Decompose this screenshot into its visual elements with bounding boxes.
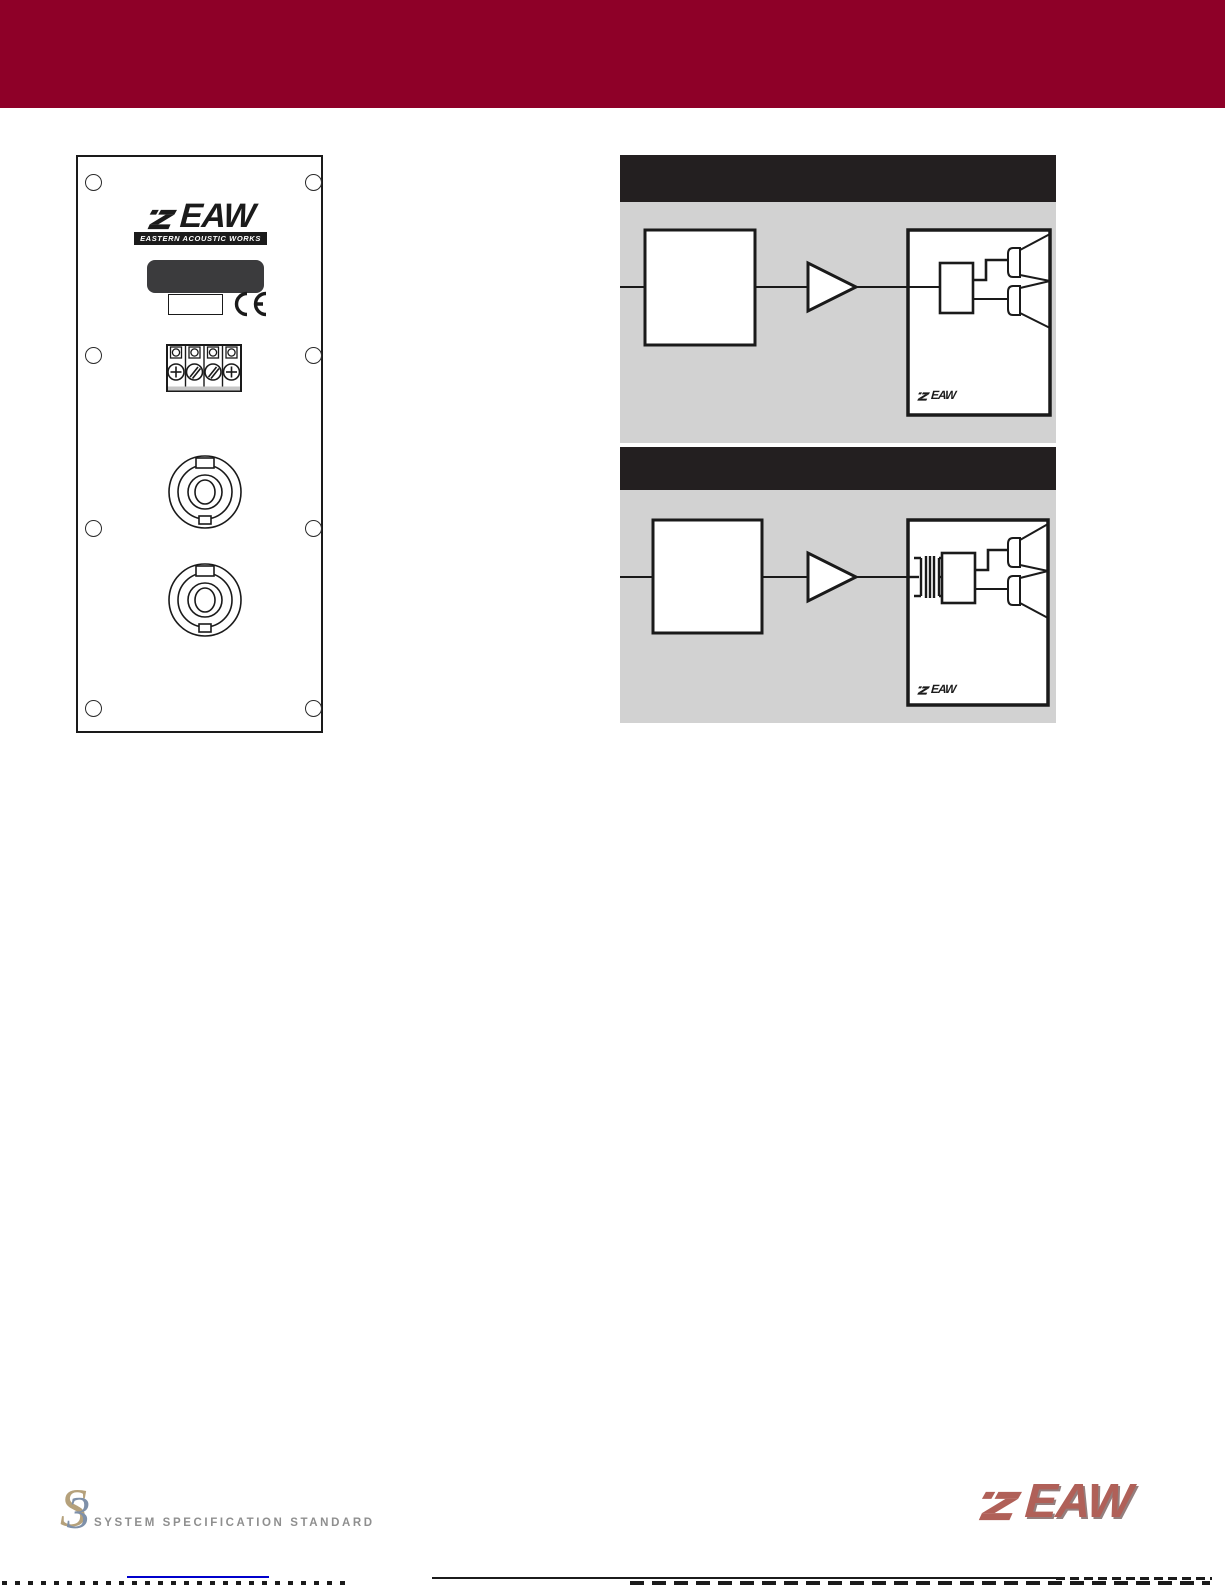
rear-input-panel-drawing: EAW EASTERN ACOUSTIC WORKS CE — [76, 155, 323, 733]
loudspeaker-cabinet-box — [908, 520, 1048, 705]
driver-icon — [1008, 248, 1020, 277]
screw-hole-icon — [85, 700, 102, 717]
amplifier-icon — [808, 553, 856, 601]
screw-hole-icon — [305, 700, 322, 717]
driver-icon — [1008, 538, 1020, 567]
document-page: EAW EASTERN ACOUSTIC WORKS CE — [0, 0, 1225, 1585]
eaw-glyph-icon — [147, 209, 177, 230]
eaw-logo: EAW EASTERN ACOUSTIC WORKS — [134, 203, 267, 245]
cabinet-eaw-logo: EAW — [917, 391, 955, 401]
screw-hole-icon — [305, 174, 322, 191]
header-band — [0, 0, 1225, 108]
serial-label-box — [168, 294, 223, 315]
wiring-diagram-transformer: EAW — [620, 447, 1056, 723]
diagram-title-bar — [620, 447, 1056, 490]
eaw-glyph-icon — [978, 1491, 1022, 1521]
driver-icon — [1008, 286, 1020, 315]
screw-hole-icon — [85, 520, 102, 537]
footer-hyperlink[interactable] — [127, 1576, 269, 1578]
processor-box — [653, 520, 762, 633]
eaw-glyph-icon — [917, 392, 930, 401]
ce-mark-icon: CE — [228, 289, 268, 319]
footer-clipped-text — [630, 1581, 1210, 1585]
footer-clipped-text — [2, 1581, 347, 1585]
s3-logo-label: SYSTEM SPECIFICATION STANDARD — [94, 1517, 375, 1529]
screw-hole-icon — [85, 174, 102, 191]
speakon-connector-icon — [165, 560, 245, 640]
footer-clipped-text — [432, 1577, 1056, 1579]
crossover-box — [942, 553, 975, 603]
crossover-box — [940, 263, 973, 313]
s3-specification-logo: S 3 SYSTEM SPECIFICATION STANDARD — [60, 1486, 375, 1532]
amplifier-icon — [808, 263, 856, 311]
wiring-diagram-fullrange: EAW — [620, 155, 1056, 443]
diagram-title-bar — [620, 155, 1056, 202]
terminal-block-icon — [166, 344, 242, 395]
eaw-glyph-icon — [917, 686, 930, 695]
s3-logo-three: 3 — [67, 1495, 90, 1532]
footer-clipped-text — [1056, 1577, 1212, 1580]
processor-box — [645, 230, 755, 345]
speakon-connector-icon — [165, 452, 245, 532]
screw-hole-icon — [85, 347, 102, 364]
loudspeaker-cabinet-box — [908, 230, 1050, 415]
driver-icon — [1008, 576, 1020, 605]
screw-hole-icon — [305, 520, 322, 537]
footer-eaw-logo: EAW — [978, 1483, 1131, 1521]
eaw-wordmark: EAW — [179, 203, 255, 230]
cabinet-eaw-logo: EAW — [917, 685, 955, 695]
screw-hole-icon — [305, 347, 322, 364]
